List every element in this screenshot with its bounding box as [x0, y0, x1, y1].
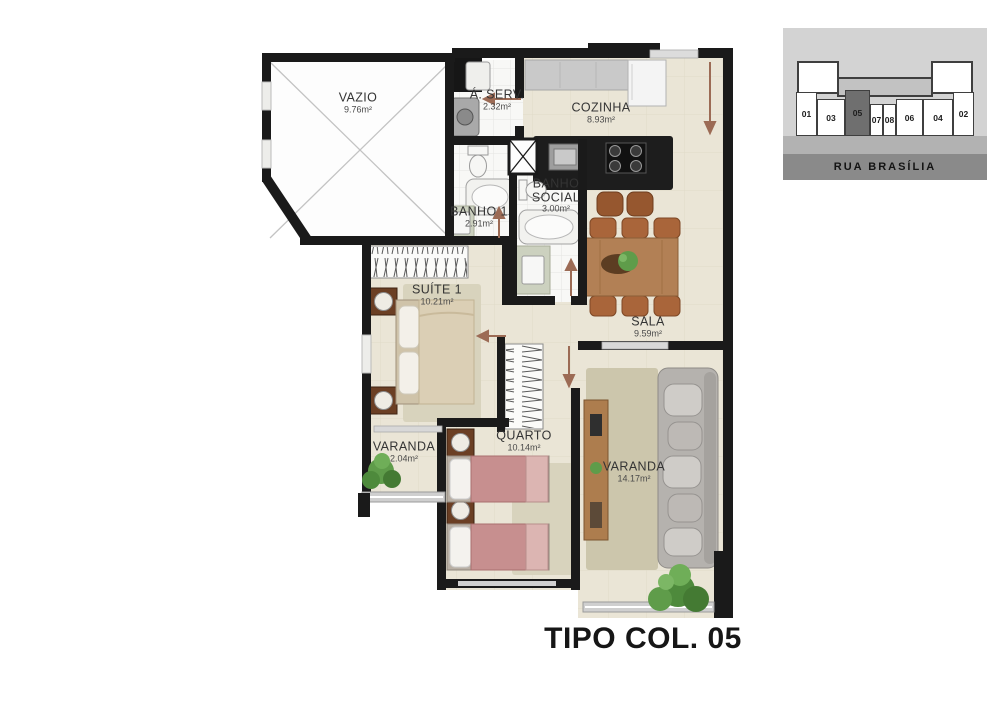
unit-01: 01	[796, 92, 817, 136]
chair	[654, 296, 680, 316]
single-bed	[447, 524, 549, 570]
unit-label: 01	[802, 109, 811, 119]
pillow	[399, 352, 419, 394]
entry-threshold	[650, 50, 698, 58]
building-wing-left	[797, 61, 839, 94]
building-wing-right	[931, 61, 973, 94]
chair	[622, 218, 648, 238]
unit-label: 02	[959, 109, 968, 119]
unit-02: 02	[953, 92, 974, 136]
unit-04: 04	[923, 99, 953, 136]
unit-label: 07	[872, 115, 881, 125]
sofa	[658, 368, 718, 568]
floorplan-page: VAZIO 9.76m² Á. SERV. 2.32m² COZINHA 8.9…	[0, 0, 1000, 706]
plan-title: TIPO COL. 05	[538, 622, 748, 656]
bar-stool	[597, 192, 623, 216]
chair	[622, 296, 648, 316]
unit-05-highlighted: 05	[845, 90, 870, 136]
chair	[654, 218, 680, 238]
laundry-tank	[466, 62, 490, 90]
unit-label: 06	[905, 113, 914, 123]
building-locator-map: 01 03 05 07 08 06 04 02 RUA BRASÍLIA	[783, 28, 987, 180]
street-band: RUA BRASÍLIA	[783, 154, 987, 180]
sidewalk-band	[783, 136, 987, 154]
shaft	[509, 139, 537, 174]
fridge	[628, 60, 666, 106]
unit-label: 03	[826, 113, 835, 123]
chair	[590, 296, 616, 316]
toilet	[468, 146, 488, 155]
varanda-large-furniture	[584, 368, 718, 570]
unit-08: 08	[883, 104, 896, 136]
unit-label: 04	[933, 113, 942, 123]
unit-06: 06	[896, 99, 923, 136]
unit-label: 05	[853, 108, 862, 118]
dining-furniture	[584, 218, 680, 316]
bar-stool	[627, 192, 653, 216]
pillow	[399, 306, 419, 348]
unit-07: 07	[870, 104, 883, 136]
chair	[590, 218, 616, 238]
unit-03: 03	[817, 99, 845, 136]
single-bed	[447, 456, 549, 502]
street-name: RUA BRASÍLIA	[834, 161, 936, 173]
unit-label: 08	[885, 115, 894, 125]
